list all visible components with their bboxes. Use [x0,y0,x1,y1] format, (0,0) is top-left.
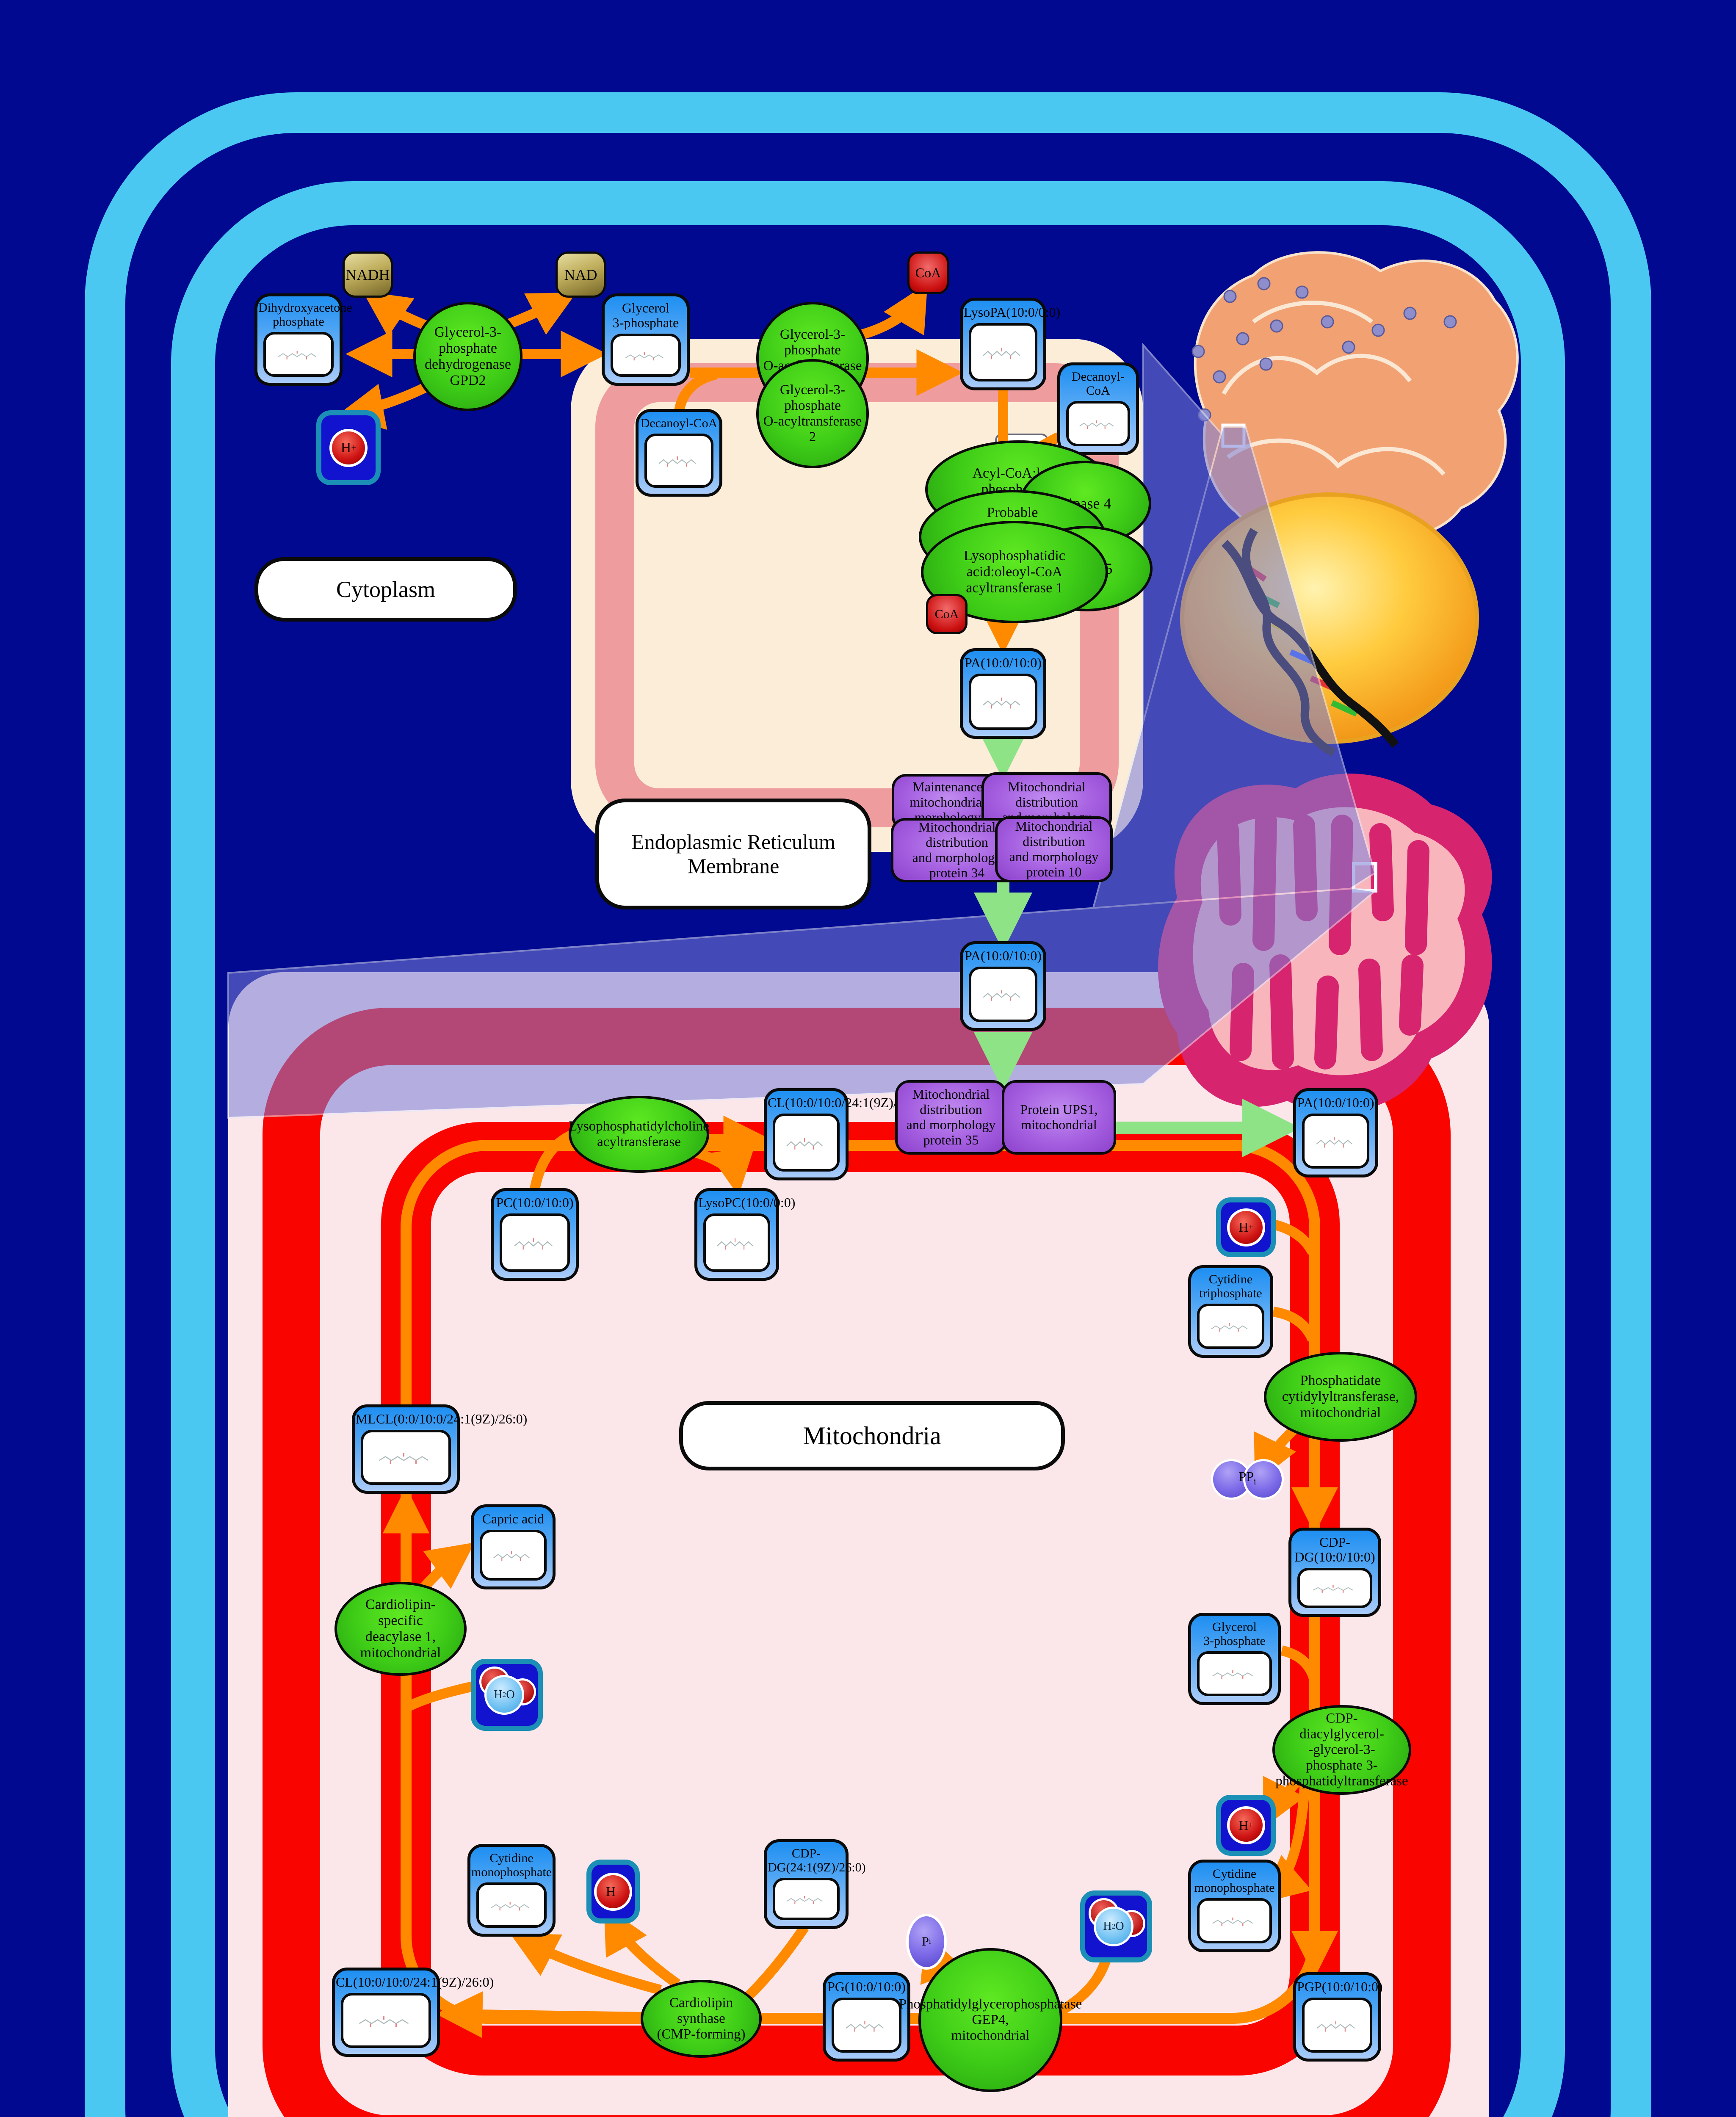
structure-squiggle [1313,1130,1358,1152]
ppi[interactable]: PPi [1211,1456,1284,1499]
h2o-left[interactable]: H2O [471,1659,543,1731]
capric-acid-structure [480,1530,547,1581]
pa-upper-structure [969,674,1037,730]
cardiolipin-specific-deacylase-1-mitochondrial-label: Cardiolipin- specific deacylase 1, mitoc… [293,1597,509,1661]
cl-top-structure [773,1114,840,1172]
ups1[interactable]: Protein UPS1, mitochondrial [1002,1080,1116,1155]
cl-bottom-structure [341,1993,431,2048]
pa-upper-label: PA(10:0/10:0) [963,651,1043,671]
pc[interactable]: PC(10:0/10:0) [491,1188,579,1281]
decanoyl-coa-left[interactable]: Decanoyl-CoA [636,409,722,497]
pc-label: PC(10:0/10:0) [494,1191,576,1211]
capric-acid-label: Capric acid [474,1507,553,1527]
cl-top[interactable]: CL(10:0/10:0/24:1(9Z)/26:0) [764,1088,849,1180]
structure-squiggle [491,1545,535,1566]
pgp[interactable]: PGP(10:0/10:0) [1293,1972,1381,2062]
structure-squiggle [1208,1317,1253,1336]
mdm10[interactable]: Mitochondrial distribution and morpholog… [995,816,1113,882]
cdp-dg-10-10-label: CDP-DG(10:0/10:0) [1291,1531,1378,1565]
nad[interactable]: NAD [556,251,606,298]
structure-squiggle [784,1890,828,1907]
structure-squiggle [511,1230,558,1255]
cdp-diacylglycerol-glycerol-3-phosphate-3-phosphatidyltransferase-label: CDP- diacylglycerol- -glycerol-3- phosph… [1228,1711,1455,1789]
h-plus-cytoplasm[interactable]: H+ [316,410,381,485]
cl-bottom-label: CL(10:0/10:0/24:1(9Z)/26:0) [335,1971,437,1990]
h-plus-bottom-left-ball: H+ [594,1873,632,1911]
phosphatidate-cytidylyltransferase-mitochondrial-label: Phosphatidate cytidylyltransferase, mito… [1215,1373,1467,1421]
gpd2-label: Glycerol-3- phosphate dehydrogenase GPD2 [379,324,556,389]
decanoyl-coa-right[interactable]: Decanoyl-CoA [1057,362,1139,455]
mlcl-structure [361,1430,451,1485]
lysopc[interactable]: LysoPC(10:0/0:0) [694,1188,779,1281]
gep4[interactable]: Phosphatidylglycerophosphatase GEP4, mit… [918,1948,1062,2092]
glycerol-3-phosphate-top[interactable]: Glycerol 3-phosphate [602,293,690,386]
coa-mid[interactable]: CoA [926,594,968,634]
structure-squiggle [488,1896,535,1915]
cdp-dg-24-1-structure [773,1878,840,1920]
structure-squiggle [980,340,1026,365]
lysophosphatidylcholine-acyltransferase-label: Lysophosphatidylcholine acyltransferase [524,1119,754,1150]
mlcl[interactable]: MLCL(0:0/10:0/24:1(9Z)/26:0) [352,1404,460,1494]
gpat2[interactable]: Glycerol-3- phosphate O-acyltransferase … [756,359,869,468]
lysopc-structure [703,1213,770,1272]
mitochondria-label: Mitochondria [679,1401,1065,1470]
lysopa-label: LysoPA(10:0/0:0) [963,301,1043,321]
structure-squiggle [275,345,322,363]
pa-right-label: PA(10:0/10:0) [1296,1091,1375,1111]
gpat2-label: Glycerol-3- phosphate O-acyltransferase … [721,382,904,445]
h2o-left-ball: H2O [484,1675,524,1715]
cytidine-monophosphate-left-label: Cytidine monophosphate [470,1847,553,1880]
lysophosphatidic-acid-oleoyl-coa-acyltransferase-1-label: Lysophosphatidic acid:oleoyl-CoA acyltra… [860,548,1169,596]
h-plus-right-1[interactable]: H+ [1216,1197,1276,1257]
cytidine-monophosphate-right-label: Cytidine monophosphate [1191,1863,1278,1896]
ppi-label: PPi [1238,1469,1256,1487]
cdp-dg-24-1[interactable]: CDP- DG(24:1(9Z)/26:0) [764,1839,849,1929]
structure-squiggle [980,690,1026,714]
pgp-label: PGP(10:0/10:0) [1296,1975,1378,1995]
cytidine-monophosphate-right-structure [1197,1898,1272,1943]
glycerol-3-phosphate-right[interactable]: Glycerol 3-phosphate [1188,1613,1281,1705]
structure-squiggle [1077,415,1119,433]
pi[interactable]: Pi [906,1914,947,1970]
pa-mid-structure [969,967,1037,1022]
gpd2[interactable]: Glycerol-3- phosphate dehydrogenase GPD2 [413,302,522,411]
cdp-diacylglycerol-glycerol-3-phosphate-3-phosphatidyltransferase[interactable]: CDP- diacylglycerol- -glycerol-3- phosph… [1272,1705,1411,1795]
structure-squiggle [784,1130,828,1155]
lysopc-label: LysoPC(10:0/0:0) [697,1191,776,1211]
dihydroxyacetone-phosphate[interactable]: Dihydroxyacetone phosphate [254,293,343,386]
h-plus-cytoplasm-ball: H+ [329,429,368,467]
cytidine-monophosphate-left[interactable]: Cytidine monophosphate [467,1844,556,1937]
glycerol-3-phosphate-right-label: Glycerol 3-phosphate [1191,1616,1278,1649]
cytidine-monophosphate-right[interactable]: Cytidine monophosphate [1188,1860,1281,1952]
structure-squiggle [980,983,1026,1006]
phosphatidate-cytidylyltransferase-mitochondrial[interactable]: Phosphatidate cytidylyltransferase, mito… [1264,1352,1417,1442]
structure-squiggle [1209,1664,1260,1683]
pg-label: PG(10:0/10:0) [826,1975,907,1995]
decanoyl-coa-right-structure [1066,401,1130,446]
cardiolipin-synthase-label: Cardiolipin synthase (CMP-forming) [603,1995,800,2042]
cdp-dg-24-1-label: CDP- DG(24:1(9Z)/26:0) [767,1842,846,1875]
mdm35[interactable]: Mitochondrial distribution and morpholog… [895,1080,1007,1155]
h-plus-bottom-left[interactable]: H+ [586,1860,640,1924]
structure-squiggle [622,347,669,364]
decanoyl-coa-left-structure [644,434,713,488]
structure-squiggle [375,1446,437,1469]
cdp-dg-10-10[interactable]: CDP-DG(10:0/10:0) [1288,1528,1381,1617]
structure-squiggle [714,1230,759,1255]
cardiolipin-synthase[interactable]: Cardiolipin synthase (CMP-forming) [641,1980,762,2058]
lysopa-structure [969,323,1037,381]
pa-right-structure [1302,1114,1369,1169]
h2o-bottom-ball: H2O [1094,1907,1133,1946]
pa-upper[interactable]: PA(10:0/10:0) [960,648,1046,739]
h2o-bottom[interactable]: H2O [1080,1890,1152,1962]
lysophosphatidylcholine-acyltransferase[interactable]: Lysophosphatidylcholine acyltransferase [569,1096,709,1173]
cl-bottom[interactable]: CL(10:0/10:0/24:1(9Z)/26:0) [332,1968,440,2057]
mlcl-label: MLCL(0:0/10:0/24:1(9Z)/26:0) [355,1407,457,1427]
cytidine-monophosphate-left-structure [476,1882,547,1928]
lysopa[interactable]: LysoPA(10:0/0:0) [960,298,1046,390]
cytidine-triphosphate-structure [1197,1304,1264,1349]
glycerol-3-phosphate-top-label: Glycerol 3-phosphate [605,296,687,331]
dihydroxyacetone-phosphate-label: Dihydroxyacetone phosphate [257,296,340,329]
structure-squiggle [1310,1580,1360,1596]
glycerol-3-phosphate-top-structure [611,334,681,377]
cytoplasm-label: Cytoplasm [254,557,517,622]
gep4-label: Phosphatidylglycerophosphatase GEP4, mit… [872,1997,1108,2044]
pa-mid[interactable]: PA(10:0/10:0) [960,941,1046,1031]
pa-right[interactable]: PA(10:0/10:0) [1293,1088,1378,1177]
pc-structure [500,1213,570,1272]
cl-top-label: CL(10:0/10:0/24:1(9Z)/26:0) [767,1091,846,1111]
decanoyl-coa-left-label: Decanoyl-CoA [639,412,719,431]
decanoyl-coa-right-label: Decanoyl-CoA [1060,365,1136,398]
structure-squiggle [355,2009,417,2032]
structure-squiggle [656,449,702,472]
er-membrane-label: Endoplasmic Reticulum Membrane [595,799,871,909]
h-plus-right-2-ball: H+ [1227,1806,1265,1844]
h-plus-right-1-ball: H+ [1227,1208,1265,1246]
cytidine-triphosphate[interactable]: Cytidine triphosphate [1188,1265,1273,1358]
glycerol-3-phosphate-right-structure [1197,1651,1272,1696]
capric-acid[interactable]: Capric acid [471,1504,556,1589]
cardiolipin-specific-deacylase-1-mitochondrial[interactable]: Cardiolipin- specific deacylase 1, mitoc… [334,1582,467,1676]
cytidine-triphosphate-label: Cytidine triphosphate [1191,1268,1270,1301]
nadh[interactable]: NADH [343,251,393,298]
structure-squiggle [1209,1912,1260,1930]
pa-mid-label: PA(10:0/10:0) [963,944,1043,964]
dihydroxyacetone-phosphate-structure [263,332,334,377]
h-plus-right-2[interactable]: H+ [1216,1795,1276,1856]
coa-top[interactable]: CoA [907,251,949,294]
structure-squiggle [1314,2014,1361,2037]
pgp-structure [1302,1998,1372,2053]
cdp-dg-10-10-structure [1297,1568,1372,1608]
